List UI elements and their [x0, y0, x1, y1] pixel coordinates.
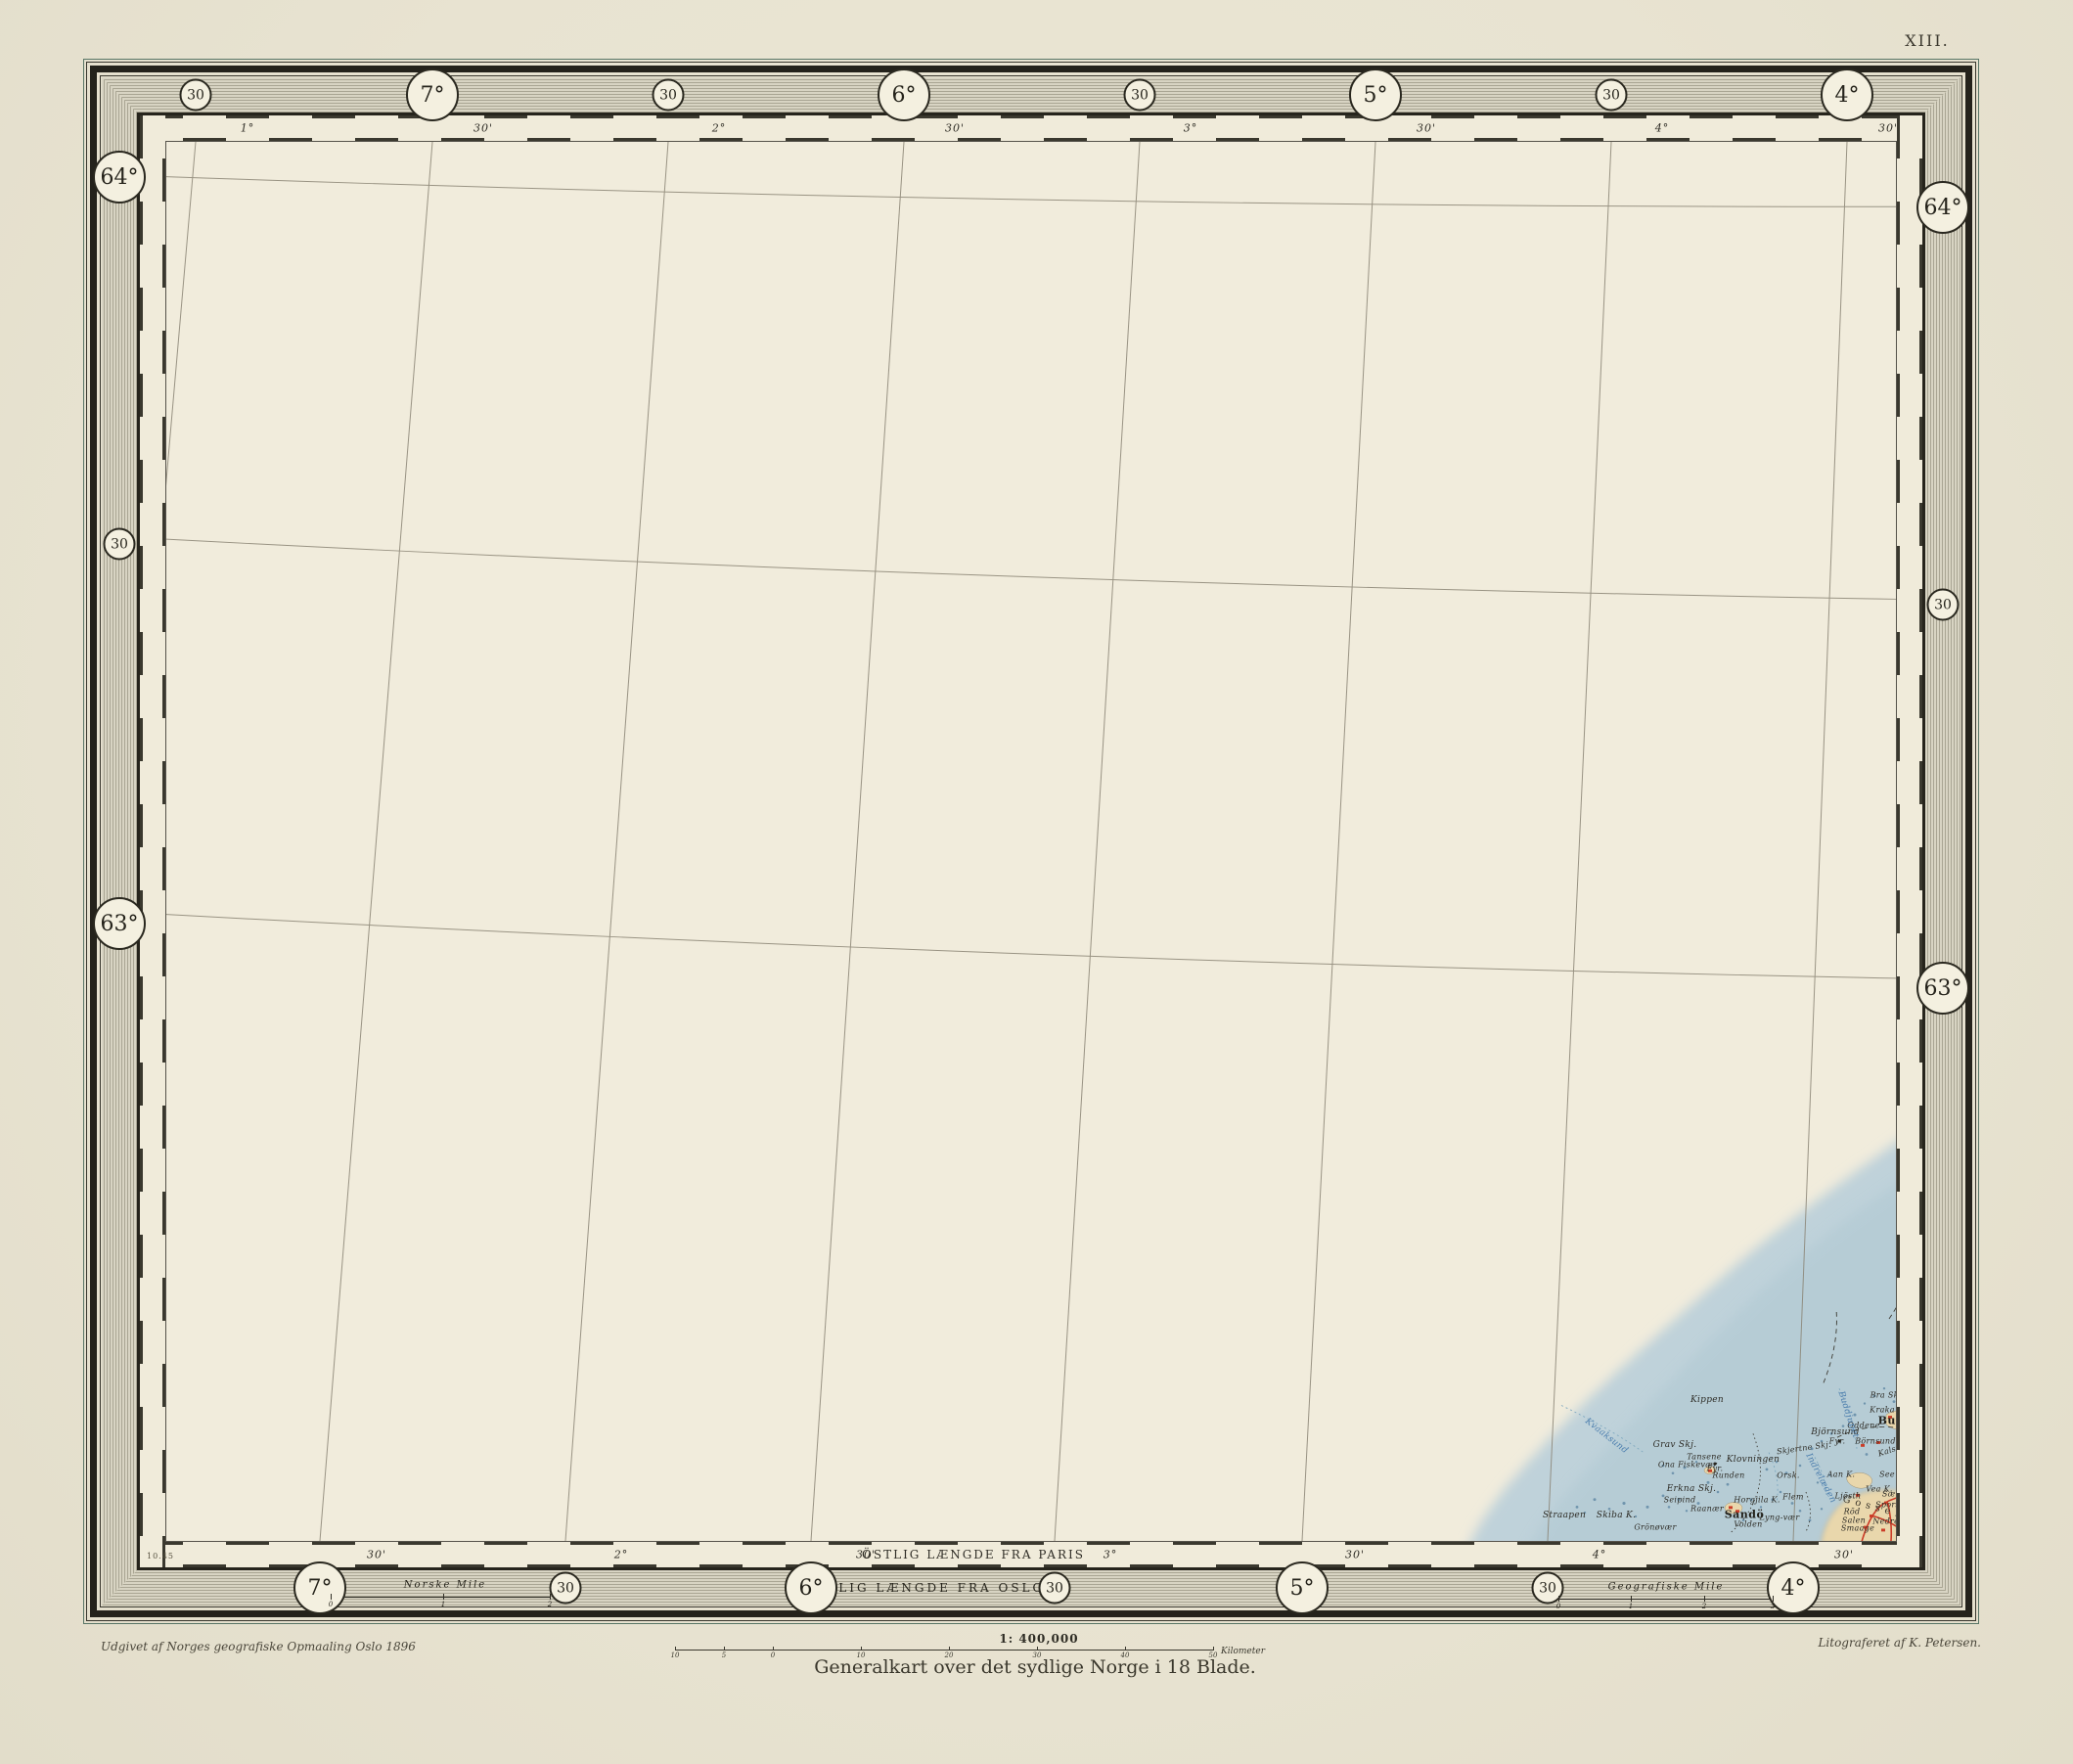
- map-label-sporsem: Sporsem: [1875, 1501, 1896, 1510]
- kilometer-scale-tick: [675, 1647, 676, 1651]
- map-label-runden: Runden: [1712, 1471, 1744, 1480]
- norske-mile-tick: [443, 1594, 444, 1600]
- map-label-flem: Flem: [1782, 1493, 1804, 1502]
- graticule-circle-64deg: 64°: [93, 151, 146, 204]
- map-label-erkna-skj-: Erkna Skj.: [1667, 1484, 1717, 1494]
- map-label-bra-skj-: Bra Skj.: [1870, 1391, 1896, 1400]
- graticule-strip-left: [140, 115, 165, 1567]
- graticule-strip-label: 1°: [241, 122, 255, 135]
- geografiske-mile-tick-number: 1: [1629, 1603, 1633, 1610]
- map-label-kippen: Kippen: [1690, 1395, 1724, 1405]
- map-label-smaage: Smaage: [1841, 1524, 1874, 1533]
- map-label-horgjila-k-: Horgjila K.: [1734, 1496, 1780, 1505]
- graticule-strip-label: 30': [856, 1549, 876, 1561]
- graticule-circle-64deg: 64°: [1916, 181, 1969, 234]
- graticule-strip-right: [1897, 115, 1922, 1567]
- scale-ratio: 1: 400,000: [985, 1632, 1093, 1646]
- graticule-strip-label: 3°: [1184, 122, 1198, 135]
- graticule-strip-label: 2°: [712, 122, 727, 135]
- kilometer-scale-number: 0: [771, 1651, 775, 1659]
- paris-longitude-label: ÖSTLIG LÆNGDE FRA PARIS: [862, 1548, 1085, 1561]
- map-sheet: XIII.: [0, 0, 2073, 1764]
- kilometer-scale-tick: [724, 1647, 725, 1651]
- map-label-bud-: Bud.: [1878, 1415, 1896, 1427]
- norske-mile-label: Norske Mile: [404, 1580, 486, 1591]
- map-label-volden: Volden: [1734, 1520, 1762, 1529]
- kilometer-scale-number: 20: [945, 1651, 954, 1659]
- graticule-strip-label: 30': [473, 122, 493, 135]
- graticule-circle-6deg: 6°: [785, 1561, 837, 1614]
- graticule-strip-label: 30': [1878, 122, 1898, 135]
- graticule-grid: [166, 142, 1896, 1541]
- graticule-circle-4deg: 4°: [1821, 68, 1873, 121]
- graticule-circle-7deg: 7°: [293, 1561, 346, 1614]
- geografiske-mile-label: Geografiske Mile: [1608, 1582, 1725, 1593]
- graticule-circle-30: 30: [653, 79, 685, 112]
- graticule-strip-label: 4°: [1593, 1549, 1607, 1561]
- graticule-strip-label: 30': [945, 122, 965, 135]
- kilometer-scale-number: 5: [722, 1651, 726, 1659]
- map-label-kraka-k-: Kraka K.: [1870, 1406, 1896, 1415]
- kilometer-scale-number: 50: [1209, 1651, 1218, 1659]
- graticule-circle-6deg: 6°: [878, 68, 930, 121]
- geografiske-mile-tick: [1773, 1596, 1774, 1602]
- kilometer-scale-number: 30: [1033, 1651, 1042, 1659]
- graticule-circle-30: 30: [1927, 589, 1960, 621]
- map-label-grav-skj-: Grav Skj.: [1653, 1440, 1697, 1450]
- kilometer-scale-tick: [773, 1647, 774, 1651]
- graticule-circle-30: 30: [550, 1572, 582, 1605]
- hatched-band-top: [102, 77, 1960, 113]
- map-label-skiba-k-: Skiba K.: [1597, 1511, 1636, 1520]
- graticule-circle-30: 30: [104, 528, 136, 561]
- geografiske-mile-bar: [1558, 1599, 1773, 1600]
- map-label-r-d: Röd: [1844, 1508, 1861, 1516]
- geografiske-mile-tick: [1704, 1596, 1705, 1602]
- geografiske-mile-tick-number: 0: [1556, 1603, 1560, 1610]
- graticule-strip-label: 4°: [1655, 122, 1670, 135]
- hatched-band-left: [102, 77, 137, 1606]
- sheet-number: XIII.: [1893, 31, 1961, 50]
- norske-mile-tick: [331, 1594, 332, 1600]
- map-label-fyr-: Fyr.: [1829, 1437, 1846, 1446]
- graticule-circle-30: 30: [1039, 1572, 1071, 1605]
- map-sheet-scan: { "sheet": { "number": "XIII." }, "color…: [0, 0, 2073, 1764]
- plate-note: 10.45: [147, 1552, 174, 1560]
- graticule-strip-label: 2°: [614, 1549, 629, 1561]
- map-canvas: KippenBra Skj.Kraka K.Bud.OddeneBjörnsun…: [166, 142, 1896, 1541]
- norske-mile-tick: [550, 1594, 551, 1600]
- graticule-strip-label: 30': [1417, 122, 1436, 135]
- kilometer-scale-number: 40: [1121, 1651, 1130, 1659]
- graticule-strip-label: 30': [367, 1549, 386, 1561]
- map-label-see-k-: See K.: [1879, 1470, 1896, 1479]
- lithographer-imprint: Litograferet af K. Petersen.: [1756, 1636, 1981, 1650]
- series-title: Generalkart over det sydlige Norge i 18 …: [790, 1656, 1280, 1678]
- geografiske-mile-tick: [1631, 1596, 1632, 1602]
- map-label-s-ter: Sæter: [1882, 1490, 1896, 1499]
- map-label-orsk-: Orsk.: [1777, 1471, 1799, 1480]
- graticule-circle-5deg: 5°: [1349, 68, 1402, 121]
- kilometer-scale-tick: [861, 1647, 862, 1651]
- norske-mile-tick-number: 1: [441, 1601, 445, 1608]
- graticule-circle-5deg: 5°: [1276, 1561, 1329, 1614]
- kilometer-scale-tick: [1037, 1647, 1038, 1651]
- map-label-straapen: Straapen: [1543, 1511, 1586, 1520]
- norske-mile-bar: [331, 1597, 550, 1598]
- kilometer-scale-number: 10: [671, 1651, 680, 1659]
- map-label-seipind: Seipind: [1664, 1496, 1696, 1505]
- graticule-strip-label: 30': [1345, 1549, 1365, 1561]
- map-label-b-rnsund: Börnsund: [1855, 1437, 1896, 1446]
- map-label-klovningen: Klovningen: [1727, 1455, 1780, 1465]
- geografiske-mile-tick: [1558, 1596, 1559, 1602]
- kilometer-scale-number: 10: [857, 1651, 866, 1659]
- hatched-band-right: [1925, 77, 1960, 1606]
- graticule-strip-label: 3°: [1104, 1549, 1118, 1561]
- graticule-circle-30: 30: [1124, 79, 1156, 112]
- graticule-circle-7deg: 7°: [406, 68, 459, 121]
- kilometer-scale-tick: [1213, 1647, 1214, 1651]
- graticule-circle-30: 30: [1596, 79, 1628, 112]
- map-label-raan-r: Raanær: [1690, 1505, 1724, 1514]
- kilometer-unit-label: Kilometer: [1221, 1647, 1265, 1656]
- map-label-lj-sth: Ljösth: [1835, 1492, 1862, 1501]
- norske-mile-tick-number: 0: [329, 1601, 333, 1608]
- graticule-strip-label: 30': [1834, 1549, 1854, 1561]
- map-label-gr-n-v-r: Grönøvær: [1634, 1523, 1676, 1532]
- geografiske-mile-tick-number: 3: [1771, 1603, 1775, 1610]
- map-label-lyng-v-r: Lyng-vær: [1760, 1514, 1800, 1522]
- norske-mile-tick-number: 2: [548, 1601, 552, 1608]
- graticule-circle-63deg: 63°: [93, 897, 146, 950]
- kilometer-scale-bar: [675, 1650, 1213, 1651]
- kilometer-scale-tick: [949, 1647, 950, 1651]
- map-label-aan-k-: Aan K.: [1827, 1470, 1856, 1479]
- publisher-imprint: Udgivet af Norges geografiske Opmaaling …: [101, 1640, 416, 1653]
- graticule-circle-30: 30: [180, 79, 212, 112]
- geografiske-mile-tick-number: 2: [1702, 1603, 1706, 1610]
- graticule-circle-63deg: 63°: [1916, 962, 1969, 1015]
- kilometer-scale-tick: [1125, 1647, 1126, 1651]
- map-label-nedreb-: Nedrebø: [1872, 1517, 1896, 1526]
